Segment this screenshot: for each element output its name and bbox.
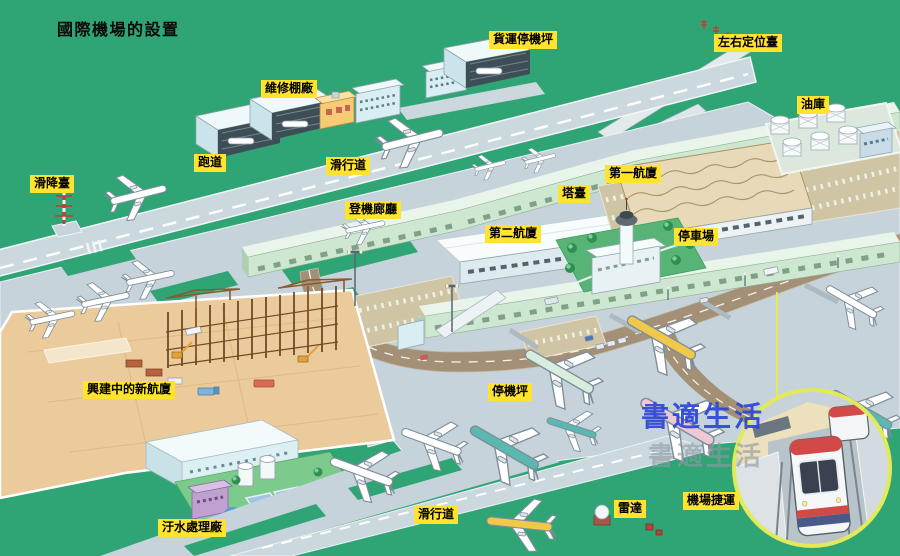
label-runway: 跑道 xyxy=(194,154,226,172)
label-radar: 雷達 xyxy=(614,500,646,518)
label-maintenance-hangar: 維修棚廠 xyxy=(261,80,317,98)
watermark-gray: 書適生活 xyxy=(648,443,764,472)
airport-diagram: 國際機場的設置 貨運停機坪 左右定位臺 維修棚廠 油庫 跑道 滑行道 滑降臺 第… xyxy=(0,0,900,556)
label-boarding-corridor: 登機廊廳 xyxy=(345,201,401,219)
label-sewage-plant: 汙水處理廠 xyxy=(158,519,226,537)
label-parking-lot: 停車場 xyxy=(674,228,718,246)
label-apron: 停機坪 xyxy=(488,383,532,401)
label-airport-mrt: 機場捷運 xyxy=(683,492,739,510)
label-new-terminal: 興建中的新航廈 xyxy=(83,381,175,399)
label-localizer: 左右定位臺 xyxy=(714,34,782,52)
label-terminal-1: 第一航廈 xyxy=(605,165,661,183)
label-taxiway-top: 滑行道 xyxy=(326,157,370,175)
label-taxiway-bottom: 滑行道 xyxy=(414,506,458,524)
watermark-blue: 書適生活 xyxy=(641,402,765,433)
airport-illustration xyxy=(0,0,900,556)
page-title: 國際機場的設置 xyxy=(57,20,180,39)
label-glide-slope: 滑降臺 xyxy=(30,175,74,193)
label-fuel-depot: 油庫 xyxy=(797,96,829,114)
label-cargo-apron: 貨運停機坪 xyxy=(489,31,557,49)
mrt-train xyxy=(789,436,851,537)
label-terminal-2: 第二航廈 xyxy=(485,225,541,243)
label-control-tower: 塔臺 xyxy=(558,185,590,203)
